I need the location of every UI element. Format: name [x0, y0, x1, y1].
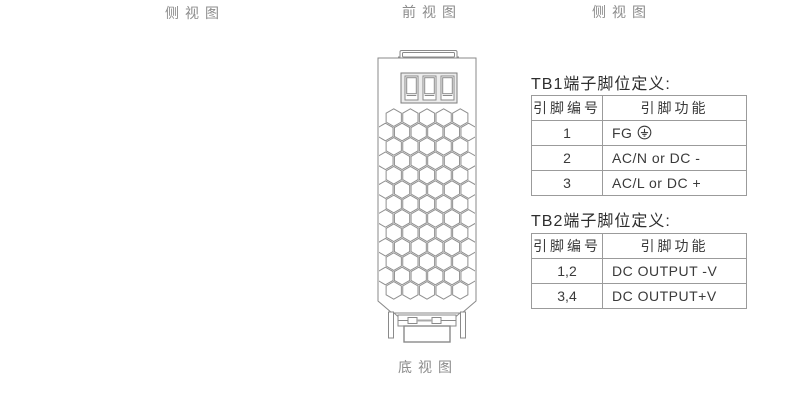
front-view-drawing [368, 40, 488, 350]
tb1-pin-3: 3 [532, 171, 603, 196]
tb2-fn-12: DC OUTPUT -V [603, 259, 747, 284]
tb2-header-row: 引脚编号 引脚功能 [532, 234, 747, 259]
terminal-block-shape [401, 73, 457, 103]
view-label-side-left: 侧视图 [150, 3, 240, 23]
view-label-bottom: 底视图 [383, 357, 473, 377]
tb1-pin-2: 2 [532, 146, 603, 171]
view-label-side-right: 侧视图 [577, 2, 667, 22]
view-label-front: 前视图 [387, 2, 477, 22]
bottom-assembly-shape [389, 312, 466, 342]
tb1-fn-2: AC/N or DC - [603, 146, 747, 171]
tb2-table: 引脚编号 引脚功能 1,2 DC OUTPUT -V 3,4 DC OUTPUT… [531, 233, 747, 309]
table-row: 2 AC/N or DC - [532, 146, 747, 171]
table-row: 1 FG [532, 121, 747, 146]
tb2-title: TB2端子脚位定义: [531, 207, 671, 231]
table-row: 1,2 DC OUTPUT -V [532, 259, 747, 284]
tb2-header-pin: 引脚编号 [532, 234, 603, 259]
earth-ground-icon [637, 125, 652, 140]
tb2-pin-34: 3,4 [532, 284, 603, 309]
tb2-fn-34: DC OUTPUT+V [603, 284, 747, 309]
table-row: 3 AC/L or DC + [532, 171, 747, 196]
table-row: 3,4 DC OUTPUT+V [532, 284, 747, 309]
tb1-header-pin: 引脚编号 [532, 96, 603, 121]
tb1-pin-1: 1 [532, 121, 603, 146]
tb1-fn-1: FG [603, 121, 747, 146]
tb2-header-function: 引脚功能 [603, 234, 747, 259]
tb1-table: 引脚编号 引脚功能 1 FG 2 AC/N or DC - 3 AC/L or … [531, 95, 747, 196]
tb1-fn-3: AC/L or DC + [603, 171, 747, 196]
tb1-header-row: 引脚编号 引脚功能 [532, 96, 747, 121]
tb1-title: TB1端子脚位定义: [531, 70, 671, 94]
tb1-header-function: 引脚功能 [603, 96, 747, 121]
drawing-canvas: 侧视图 前视图 侧视图 底视图 [0, 0, 790, 403]
tb2-pin-12: 1,2 [532, 259, 603, 284]
